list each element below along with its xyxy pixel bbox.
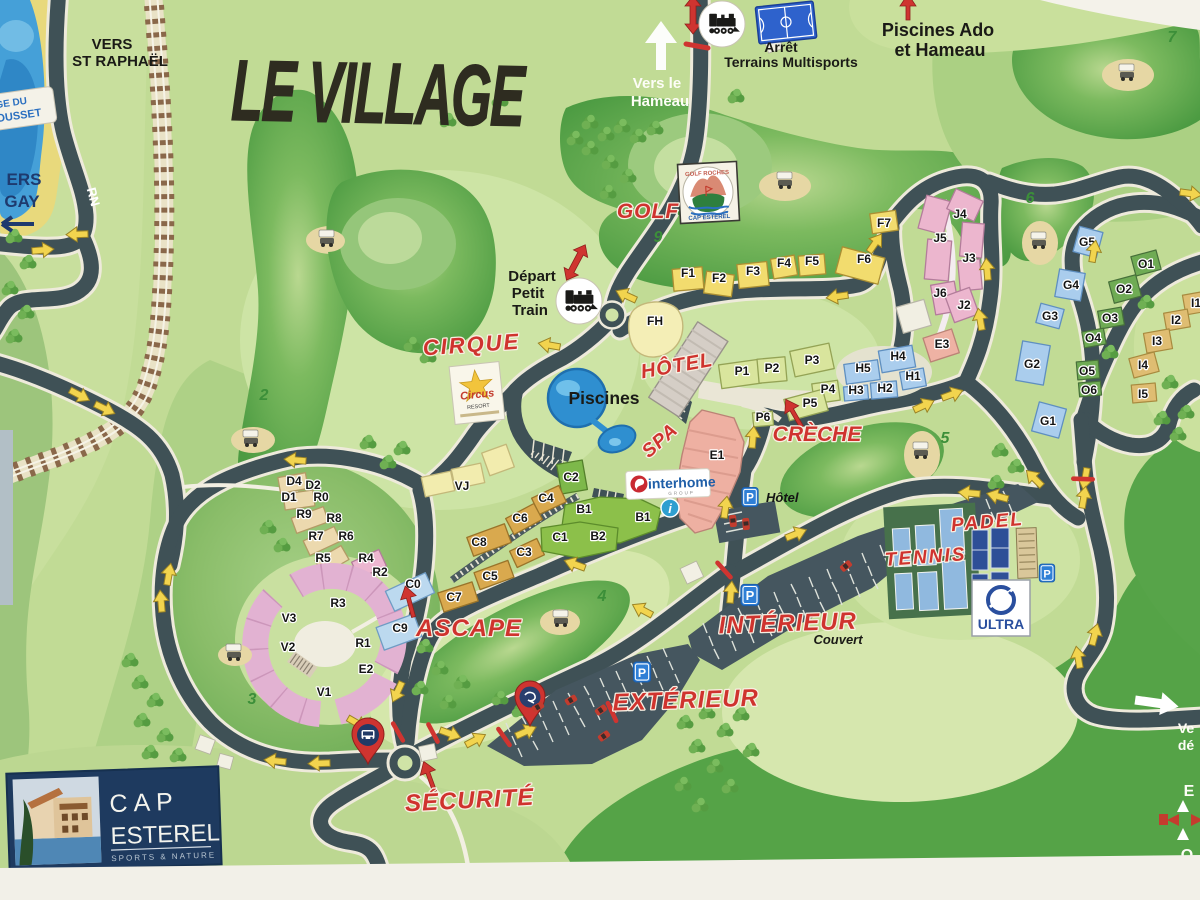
svg-text:E1: E1 [710,448,725,462]
svg-text:Petit: Petit [512,285,545,302]
svg-text:I4: I4 [1138,358,1148,372]
svg-text:I5: I5 [1138,387,1148,401]
svg-text:I3: I3 [1152,334,1162,348]
svg-text:Couvert: Couvert [813,632,863,647]
svg-text:F7: F7 [877,216,891,230]
svg-text:C7: C7 [446,590,462,604]
svg-text:O6: O6 [1081,383,1097,397]
svg-text:O4: O4 [1085,331,1101,345]
svg-text:i: i [668,501,672,516]
svg-text:R0: R0 [313,490,329,504]
svg-text:LE VILLAGE: LE VILLAGE [231,42,528,145]
svg-text:interhome: interhome [648,473,716,491]
svg-text:GAY: GAY [4,192,40,211]
svg-text:F1: F1 [681,266,695,280]
svg-text:CRÈCHE: CRÈCHE [773,423,863,446]
svg-text:R6: R6 [338,529,354,543]
svg-text:ERS: ERS [7,170,42,189]
svg-text:Terrains Multisports: Terrains Multisports [724,54,858,70]
svg-text:C6: C6 [512,511,528,525]
svg-text:J2: J2 [957,298,971,312]
svg-text:V3: V3 [282,611,297,625]
svg-text:9: 9 [654,229,663,246]
svg-text:F5: F5 [805,254,819,268]
svg-text:P2: P2 [765,361,780,375]
svg-text:B2: B2 [590,529,606,543]
svg-text:Piscines Ado: Piscines Ado [882,20,994,40]
svg-text:Vers le: Vers le [633,75,681,92]
svg-text:Hameau: Hameau [631,93,689,110]
svg-text:ESTEREL: ESTEREL [110,819,220,850]
svg-text:R5: R5 [315,551,331,565]
svg-text:Arrêt: Arrêt [764,39,798,55]
svg-text:G3: G3 [1042,309,1058,323]
svg-text:FH: FH [647,314,663,328]
svg-text:R1: R1 [355,636,371,650]
svg-text:F6: F6 [857,252,871,266]
svg-text:G1: G1 [1040,414,1056,428]
svg-text:R9: R9 [296,507,312,521]
svg-text:7: 7 [1168,29,1178,46]
svg-text:VJ: VJ [455,479,470,493]
svg-text:O5: O5 [1079,364,1095,378]
svg-text:D4: D4 [286,474,302,488]
svg-text:O2: O2 [1116,282,1132,296]
svg-text:R3: R3 [330,596,346,610]
svg-text:G4: G4 [1063,278,1079,292]
svg-text:5: 5 [941,430,951,447]
svg-text:4: 4 [597,588,607,605]
svg-text:Départ: Départ [508,268,556,285]
svg-text:E2: E2 [359,662,374,676]
svg-text:B1: B1 [635,510,651,524]
svg-text:R7: R7 [308,529,324,543]
svg-text:ULTRA: ULTRA [978,616,1024,632]
svg-text:J6: J6 [933,286,947,300]
svg-text:R8: R8 [326,511,342,525]
svg-text:B1: B1 [576,502,592,516]
svg-text:Hôtel: Hôtel [766,490,799,505]
svg-text:D1: D1 [281,490,297,504]
svg-text:C8: C8 [471,535,487,549]
svg-text:R4: R4 [358,551,374,565]
svg-text:F4: F4 [777,256,791,270]
svg-text:P5: P5 [803,396,818,410]
svg-text:O3: O3 [1102,311,1118,325]
svg-text:H2: H2 [877,381,893,395]
svg-text:C2: C2 [563,470,579,484]
svg-text:dé: dé [1178,737,1195,753]
svg-text:EXTÉRIEUR: EXTÉRIEUR [612,683,759,716]
svg-text:V2: V2 [281,640,296,654]
svg-text:VERS: VERS [92,36,133,53]
svg-text:I1: I1 [1191,296,1200,310]
svg-text:C5: C5 [482,569,498,583]
svg-text:H3: H3 [848,383,864,397]
svg-text:CAP: CAP [109,788,179,818]
svg-text:Train: Train [512,302,548,319]
svg-text:E: E [1184,783,1195,800]
svg-text:J5: J5 [933,231,947,245]
svg-text:C1: C1 [552,530,568,544]
svg-text:H1: H1 [905,369,921,383]
svg-text:GROUP: GROUP [668,490,695,496]
svg-text:F2: F2 [712,271,726,285]
svg-text:I2: I2 [1171,313,1181,327]
svg-text:V1: V1 [317,685,332,699]
svg-text:et Hameau: et Hameau [894,40,985,60]
svg-text:H4: H4 [890,349,906,363]
svg-text:F3: F3 [746,264,760,278]
svg-text:E3: E3 [935,337,950,351]
svg-text:G2: G2 [1024,357,1040,371]
svg-text:R2: R2 [372,565,388,579]
svg-text:P4: P4 [821,382,836,396]
svg-text:C9: C9 [392,621,408,635]
svg-text:J4: J4 [953,207,967,221]
svg-text:3: 3 [248,691,257,708]
svg-text:2: 2 [259,387,269,404]
svg-text:C4: C4 [538,491,554,505]
svg-text:C3: C3 [516,545,532,559]
svg-text:P6: P6 [756,410,771,424]
svg-text:ASCAPE: ASCAPE [415,615,522,642]
svg-text:P3: P3 [805,353,820,367]
svg-text:J3: J3 [962,251,976,265]
svg-text:H5: H5 [855,361,871,375]
svg-text:GOLF: GOLF [617,200,679,223]
svg-text:P1: P1 [735,364,750,378]
svg-text:6: 6 [1026,190,1035,207]
svg-text:O1: O1 [1138,257,1154,271]
svg-text:ST RAPHAËL: ST RAPHAËL [72,53,168,70]
svg-text:Piscines: Piscines [568,388,639,408]
svg-text:Ve: Ve [1178,720,1195,736]
